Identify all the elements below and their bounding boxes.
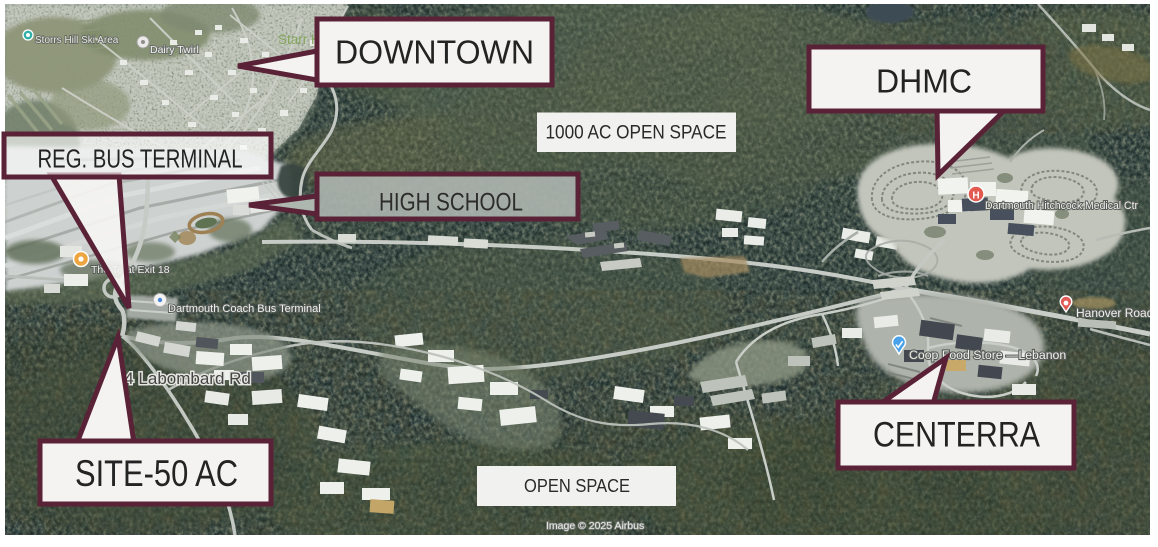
svg-text:DHMC: DHMC (876, 63, 972, 100)
svg-text:Dairy Twirl: Dairy Twirl (150, 44, 199, 56)
svg-text:Storrs Hill Ski Area: Storrs Hill Ski Area (35, 35, 119, 46)
svg-text:Image © 2025 Airbus: Image © 2025 Airbus (546, 520, 644, 532)
svg-text:CENTERRA: CENTERRA (873, 415, 1040, 455)
svg-text:'4 Labombard Rd: '4 Labombard Rd (121, 369, 251, 388)
svg-text:1000 AC OPEN SPACE: 1000 AC OPEN SPACE (546, 123, 727, 144)
svg-text:Coop Food Store —Lebanon: Coop Food Store —Lebanon (909, 348, 1066, 362)
svg-text:Hanover Road: Hanover Road (1076, 306, 1153, 320)
svg-text:Starr H: Starr H (278, 32, 321, 47)
svg-text:REG. BUS TERMINAL: REG. BUS TERMINAL (38, 146, 243, 174)
svg-text:DOWNTOWN: DOWNTOWN (335, 35, 534, 72)
svg-text:SITE-50 AC: SITE-50 AC (75, 453, 238, 494)
svg-text:OPEN SPACE: OPEN SPACE (524, 476, 630, 496)
svg-text:Dartmouth Hitchcock Medical Ct: Dartmouth Hitchcock Medical Ctr (985, 200, 1138, 212)
svg-text:H: H (972, 191, 979, 202)
svg-text:HIGH SCHOOL: HIGH SCHOOL (379, 189, 523, 217)
svg-text:Dartmouth Coach Bus Terminal: Dartmouth Coach Bus Terminal (168, 303, 321, 315)
